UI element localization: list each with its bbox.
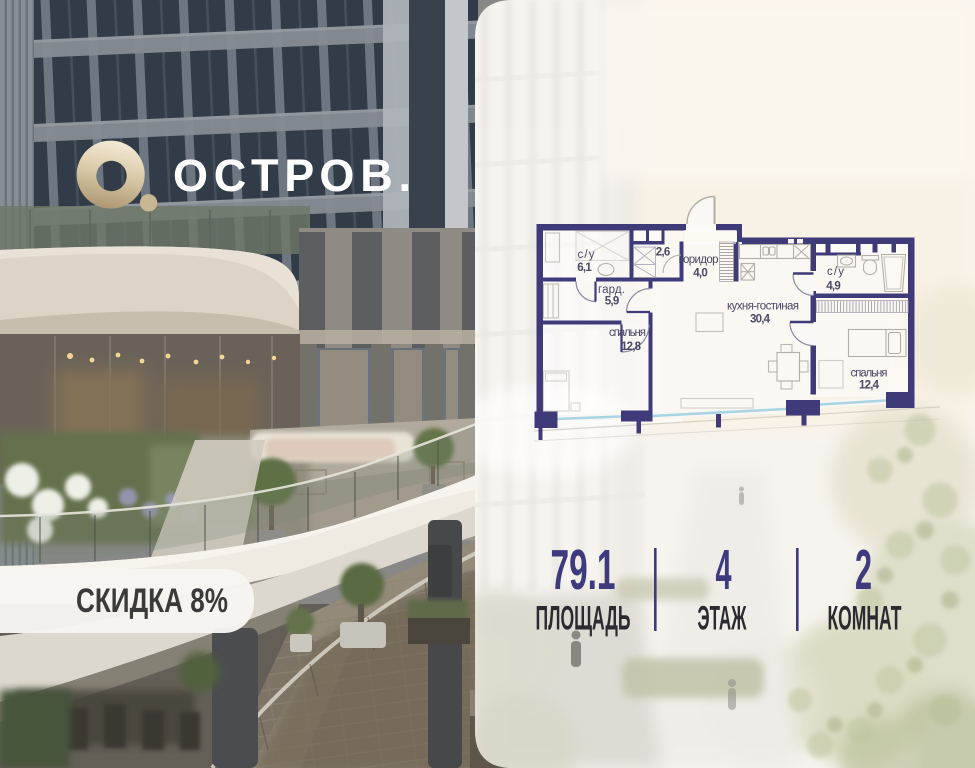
svg-text:СКИДКА 8%: СКИДКА 8%	[76, 582, 228, 620]
svg-text:КОМНАТ: КОМНАТ	[828, 600, 902, 638]
svg-text:30,4: 30,4	[750, 313, 771, 325]
svg-text:спальня: спальня	[851, 368, 888, 380]
svg-text:коридор: коридор	[679, 254, 719, 266]
svg-text:2,6: 2,6	[656, 246, 671, 258]
svg-text:гард.: гард.	[598, 284, 625, 296]
svg-text:12,4: 12,4	[859, 380, 880, 392]
svg-text:4: 4	[716, 538, 732, 602]
svg-text:2: 2	[855, 538, 872, 602]
svg-text:ПЛОЩАДЬ: ПЛОЩАДЬ	[536, 600, 631, 638]
svg-text:спальня: спальня	[609, 327, 646, 339]
svg-text:5,9: 5,9	[605, 295, 620, 307]
svg-text:4,9: 4,9	[826, 280, 841, 292]
svg-text:с/у: с/у	[578, 249, 595, 261]
svg-text:79.1: 79.1	[551, 538, 616, 602]
svg-text:6,1: 6,1	[577, 262, 592, 274]
svg-text:12,8: 12,8	[621, 341, 642, 353]
svg-text:с/у: с/у	[827, 266, 844, 278]
svg-text:кухня-гостиная: кухня-гостиная	[727, 301, 799, 313]
svg-text:ЭТАЖ: ЭТАЖ	[698, 600, 747, 638]
svg-text:4,0: 4,0	[693, 267, 708, 279]
